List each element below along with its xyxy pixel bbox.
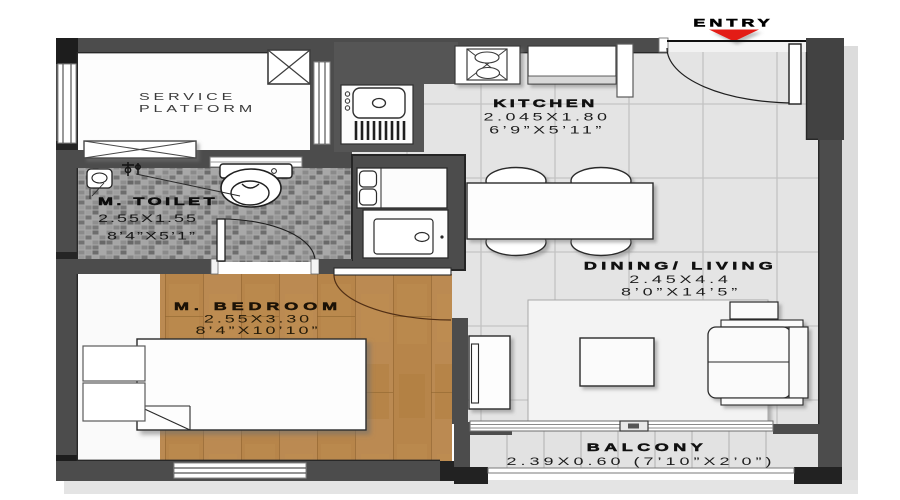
svg-text:ENTRY: ENTRY [693,17,773,30]
svg-text:2.045X1.80: 2.045X1.80 [483,111,610,124]
svg-text:6’9”X5’11”: 6’9”X5’11” [489,124,605,137]
svg-text:DINING/ LIVING: DINING/ LIVING [584,260,777,273]
svg-text:2.55X1.55: 2.55X1.55 [98,212,198,225]
svg-text:8’0”X14’5”: 8’0”X14’5” [621,286,741,299]
svg-text:M. TOILET: M. TOILET [98,195,218,208]
svg-text:M. BEDROOM: M. BEDROOM [174,300,342,313]
svg-text:BALCONY: BALCONY [587,441,707,454]
svg-text:SERVICE: SERVICE [139,91,236,102]
svg-text:2.39X0.60 (7’10”X2’0”): 2.39X0.60 (7’10”X2’0”) [506,455,775,468]
svg-text:8’4”X5’1”: 8’4”X5’1” [107,230,197,243]
svg-text:PLATFORM: PLATFORM [139,103,256,114]
svg-text:2.45X4.4: 2.45X4.4 [629,273,731,286]
svg-text:8’4”X10’10”: 8’4”X10’10” [195,324,320,337]
svg-text:2.55X3.30: 2.55X3.30 [204,313,312,326]
svg-text:KITCHEN: KITCHEN [493,97,597,110]
